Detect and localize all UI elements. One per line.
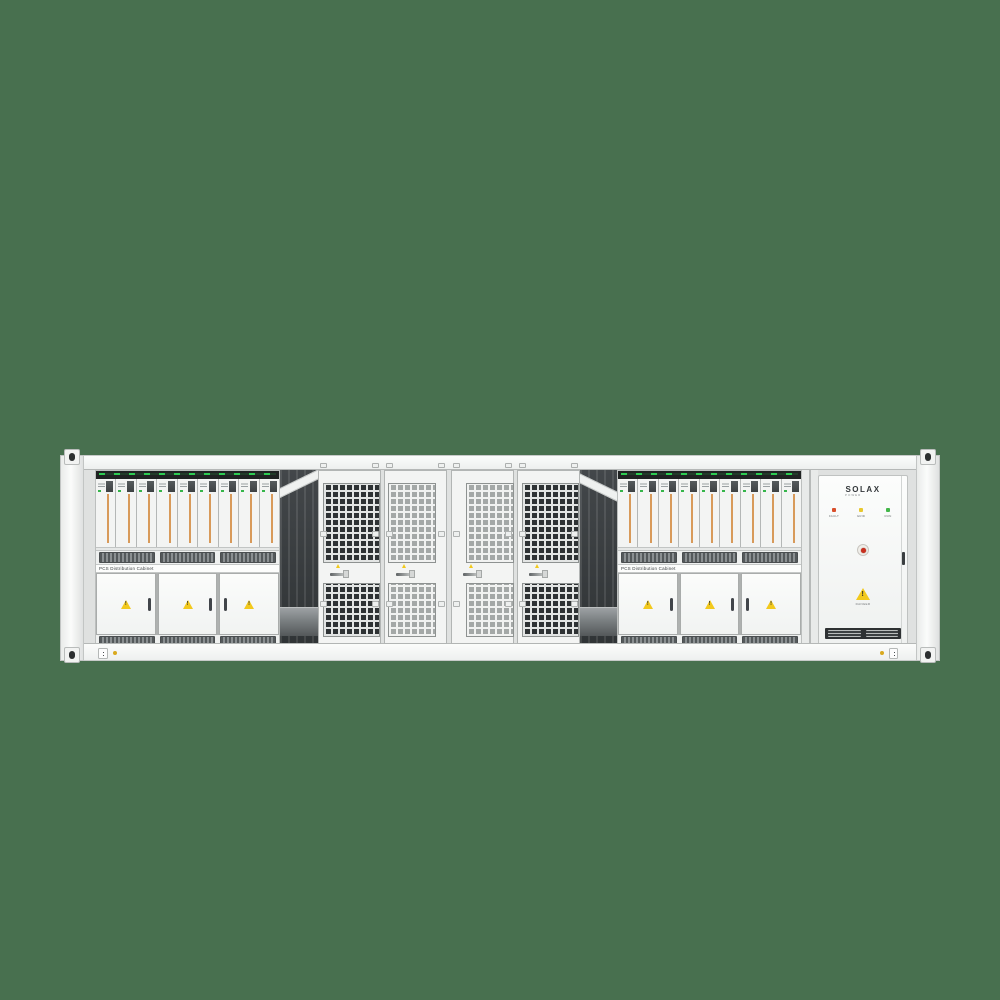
distribution-cabinet-door[interactable] (680, 573, 740, 635)
solax-control-cabinet: SOLAX POWER FAULT GRID RUN (818, 475, 908, 645)
module-led (159, 490, 162, 492)
module-vent (628, 481, 635, 492)
emergency-stop-button[interactable] (857, 544, 869, 556)
grid-led-icon (859, 508, 863, 512)
pcs-module (658, 479, 678, 547)
module-label (159, 483, 166, 487)
door-mid-band (387, 563, 444, 581)
container-top-rail (60, 455, 940, 470)
vent-grille (220, 552, 276, 563)
battery-mesh-door[interactable] (384, 470, 447, 644)
cabinet-door-handle[interactable] (902, 552, 905, 565)
pcs-module-row (618, 479, 801, 547)
status-led-row: FAULT GRID RUN (825, 508, 897, 518)
rod-keeper (320, 531, 327, 537)
latch-mount (476, 570, 482, 578)
lock-rod[interactable] (388, 463, 391, 641)
warning-triangle-icon (705, 600, 715, 609)
module-handle[interactable] (189, 494, 191, 543)
battery-compartment-doors (318, 470, 580, 644)
rod-keeper (453, 601, 460, 607)
module-label (139, 483, 146, 487)
pcs-module (197, 479, 217, 547)
module-label (763, 483, 770, 487)
latch-mount (343, 570, 349, 578)
rod-keeper (505, 601, 512, 607)
high-voltage-warning: DANGER (819, 588, 907, 606)
module-vent (270, 481, 277, 492)
rod-keeper (571, 601, 578, 607)
cable-duct (276, 607, 322, 636)
battery-mesh-door[interactable] (451, 470, 514, 644)
door-mid-band (520, 563, 577, 581)
module-vent (690, 481, 697, 492)
warning-triangle-icon (183, 600, 193, 609)
module-vent (250, 481, 257, 492)
rod-keeper (438, 531, 445, 537)
rod-keeper (372, 601, 379, 607)
pcs-module (136, 479, 156, 547)
module-led (620, 490, 623, 492)
solax-logo: SOLAX POWER (819, 485, 907, 497)
module-label (98, 483, 105, 487)
rod-keeper (386, 531, 393, 537)
warning-triangle-icon (856, 588, 870, 600)
lock-rod[interactable] (440, 463, 443, 641)
warning-sticker-icon (469, 564, 473, 568)
rod-keeper (438, 601, 445, 607)
run-led-icon (886, 508, 890, 512)
pcs-module (699, 479, 719, 547)
mesh-grille-upper (388, 483, 436, 563)
module-handle[interactable] (691, 494, 693, 543)
module-vent (669, 481, 676, 492)
module-label (221, 483, 228, 487)
container-bottom-rail (60, 643, 940, 661)
warning-triangle-icon (244, 600, 254, 609)
module-led (262, 490, 265, 492)
pcs-module (177, 479, 197, 547)
module-label (784, 483, 791, 487)
lock-rod[interactable] (507, 463, 510, 641)
pcs-module (618, 479, 637, 547)
rod-keeper (505, 531, 512, 537)
module-led (722, 490, 725, 492)
service-switch-right[interactable] (889, 648, 898, 659)
module-vent (229, 481, 236, 492)
module-led (640, 490, 643, 492)
pcs-module (218, 479, 238, 547)
rack-status-strip (618, 471, 801, 479)
module-led (180, 490, 183, 492)
module-label (702, 483, 709, 487)
distribution-cabinet-door[interactable] (158, 573, 218, 635)
module-led (743, 490, 746, 492)
mesh-grille-upper (323, 483, 380, 563)
door-handle[interactable] (148, 598, 151, 611)
corner-post-right (916, 455, 940, 661)
corner-casting (64, 449, 80, 465)
service-switch-left[interactable] (98, 648, 108, 659)
roof-brace (275, 469, 324, 499)
corner-casting (920, 647, 936, 663)
mesh-grille-lower (388, 583, 436, 637)
module-label (180, 483, 187, 487)
vent-slot (866, 630, 899, 637)
rack-status-strip (96, 471, 279, 479)
module-led (139, 490, 142, 492)
mesh-grille-lower (522, 583, 579, 637)
pcs-module (678, 479, 698, 547)
ground-stud-left (113, 651, 117, 655)
frame-gap-cabinet (802, 470, 818, 644)
module-label (661, 483, 668, 487)
module-handle[interactable] (128, 494, 130, 543)
module-vent (147, 481, 154, 492)
distribution-cabinet-door[interactable] (618, 573, 678, 635)
module-handle[interactable] (271, 494, 273, 543)
roof-brace (574, 472, 623, 502)
cable-duct (576, 607, 621, 636)
vent-slot (828, 630, 861, 637)
module-vent (168, 481, 175, 492)
rod-keeper (453, 531, 460, 537)
module-handle[interactable] (107, 494, 109, 543)
module-handle[interactable] (711, 494, 713, 543)
vent-band (96, 551, 279, 564)
door-handle[interactable] (731, 598, 734, 611)
module-label (241, 483, 248, 487)
corner-casting (920, 449, 936, 465)
lock-rod[interactable] (455, 463, 458, 641)
module-vent (772, 481, 779, 492)
vent-grille (742, 552, 798, 563)
pcs-module (96, 479, 115, 547)
module-handle[interactable] (230, 494, 232, 543)
module-label (681, 483, 688, 487)
warning-sticker-icon (402, 564, 406, 568)
lock-rod[interactable] (521, 463, 524, 641)
warning-sticker-icon (535, 564, 539, 568)
rod-keeper (571, 531, 578, 537)
mesh-grille-upper (522, 483, 579, 563)
module-label (118, 483, 125, 487)
warning-triangle-icon (121, 600, 131, 609)
module-vent (710, 481, 717, 492)
pcs-module (156, 479, 176, 547)
module-led (702, 490, 705, 492)
pcs-module (637, 479, 657, 547)
lock-rod[interactable] (374, 463, 377, 641)
vent-grille (621, 552, 677, 563)
battery-mesh-door[interactable] (318, 470, 381, 644)
cabinet-vent (825, 628, 901, 639)
module-label (722, 483, 729, 487)
pcs-module (781, 479, 801, 547)
module-handle[interactable] (629, 494, 631, 543)
module-label (200, 483, 207, 487)
module-handle[interactable] (752, 494, 754, 543)
lock-rod[interactable] (573, 463, 576, 641)
module-label (640, 483, 647, 487)
door-mid-band (321, 563, 378, 581)
rack-door-row (96, 573, 279, 635)
distribution-cabinet-door[interactable] (96, 573, 156, 635)
fault-led-icon (832, 508, 836, 512)
module-vent (731, 481, 738, 492)
module-led (681, 490, 684, 492)
module-label (262, 483, 269, 487)
module-handle[interactable] (250, 494, 252, 543)
module-handle[interactable] (209, 494, 211, 543)
pcs-module (719, 479, 739, 547)
lock-rod[interactable] (322, 463, 325, 641)
door-handle[interactable] (224, 598, 227, 611)
fault-led: FAULT (825, 508, 843, 518)
corner-post-left (60, 455, 84, 661)
vent-grille (682, 552, 738, 563)
distribution-cabinet-door[interactable] (741, 573, 801, 635)
rod-keeper (372, 531, 379, 537)
pcs-rack-right: PCS Distribution Cabinet (617, 470, 802, 644)
latch-mount (409, 570, 415, 578)
module-label (620, 483, 627, 487)
door-handle[interactable] (209, 598, 212, 611)
run-led: RUN (879, 508, 897, 518)
module-led (98, 490, 101, 492)
rod-keeper (320, 601, 327, 607)
warning-sticker-icon (336, 564, 340, 568)
rack-label: PCS Distribution Cabinet (96, 564, 279, 573)
module-led (241, 490, 244, 492)
warning-triangle-icon (766, 600, 776, 609)
mesh-grille-lower (323, 583, 380, 637)
latch-mount (542, 570, 548, 578)
rod-keeper (519, 601, 526, 607)
scene-background: PCS Distribution Cabinet PCS Distributio… (0, 0, 1000, 1000)
module-led (784, 490, 787, 492)
door-handle[interactable] (746, 598, 749, 611)
module-vent (106, 481, 113, 492)
module-led (118, 490, 121, 492)
module-handle[interactable] (650, 494, 652, 543)
battery-storage-container: PCS Distribution Cabinet PCS Distributio… (60, 449, 940, 669)
module-led (763, 490, 766, 492)
module-led (200, 490, 203, 492)
frame-gap-left (280, 470, 318, 644)
module-vent (792, 481, 799, 492)
vent-grille (99, 552, 155, 563)
pcs-module (115, 479, 135, 547)
module-vent (649, 481, 656, 492)
module-label (743, 483, 750, 487)
pcs-module (740, 479, 760, 547)
pcs-rack-left: PCS Distribution Cabinet (95, 470, 280, 644)
module-handle[interactable] (793, 494, 795, 543)
rack-door-row (618, 573, 801, 635)
module-vent (209, 481, 216, 492)
ground-stud-right (880, 651, 884, 655)
module-handle[interactable] (670, 494, 672, 543)
rack-label: PCS Distribution Cabinet (618, 564, 801, 573)
vent-grille (160, 552, 216, 563)
pcs-module-row (96, 479, 279, 547)
rod-keeper (386, 601, 393, 607)
grid-led: GRID (852, 508, 870, 518)
module-handle[interactable] (731, 494, 733, 543)
module-vent (751, 481, 758, 492)
module-led (221, 490, 224, 492)
distribution-cabinet-door[interactable] (219, 573, 279, 635)
door-handle[interactable] (670, 598, 673, 611)
battery-mesh-door[interactable] (517, 470, 580, 644)
module-vent (127, 481, 134, 492)
module-handle[interactable] (772, 494, 774, 543)
corner-casting (64, 647, 80, 663)
rod-keeper (519, 531, 526, 537)
vent-band (618, 551, 801, 564)
module-vent (188, 481, 195, 492)
frame-gap-right (580, 470, 617, 644)
pcs-module (760, 479, 780, 547)
door-mid-band (454, 563, 511, 581)
module-led (661, 490, 664, 492)
pcs-module (259, 479, 279, 547)
module-handle[interactable] (169, 494, 171, 543)
warning-triangle-icon (643, 600, 653, 609)
module-handle[interactable] (148, 494, 150, 543)
pcs-module (238, 479, 258, 547)
